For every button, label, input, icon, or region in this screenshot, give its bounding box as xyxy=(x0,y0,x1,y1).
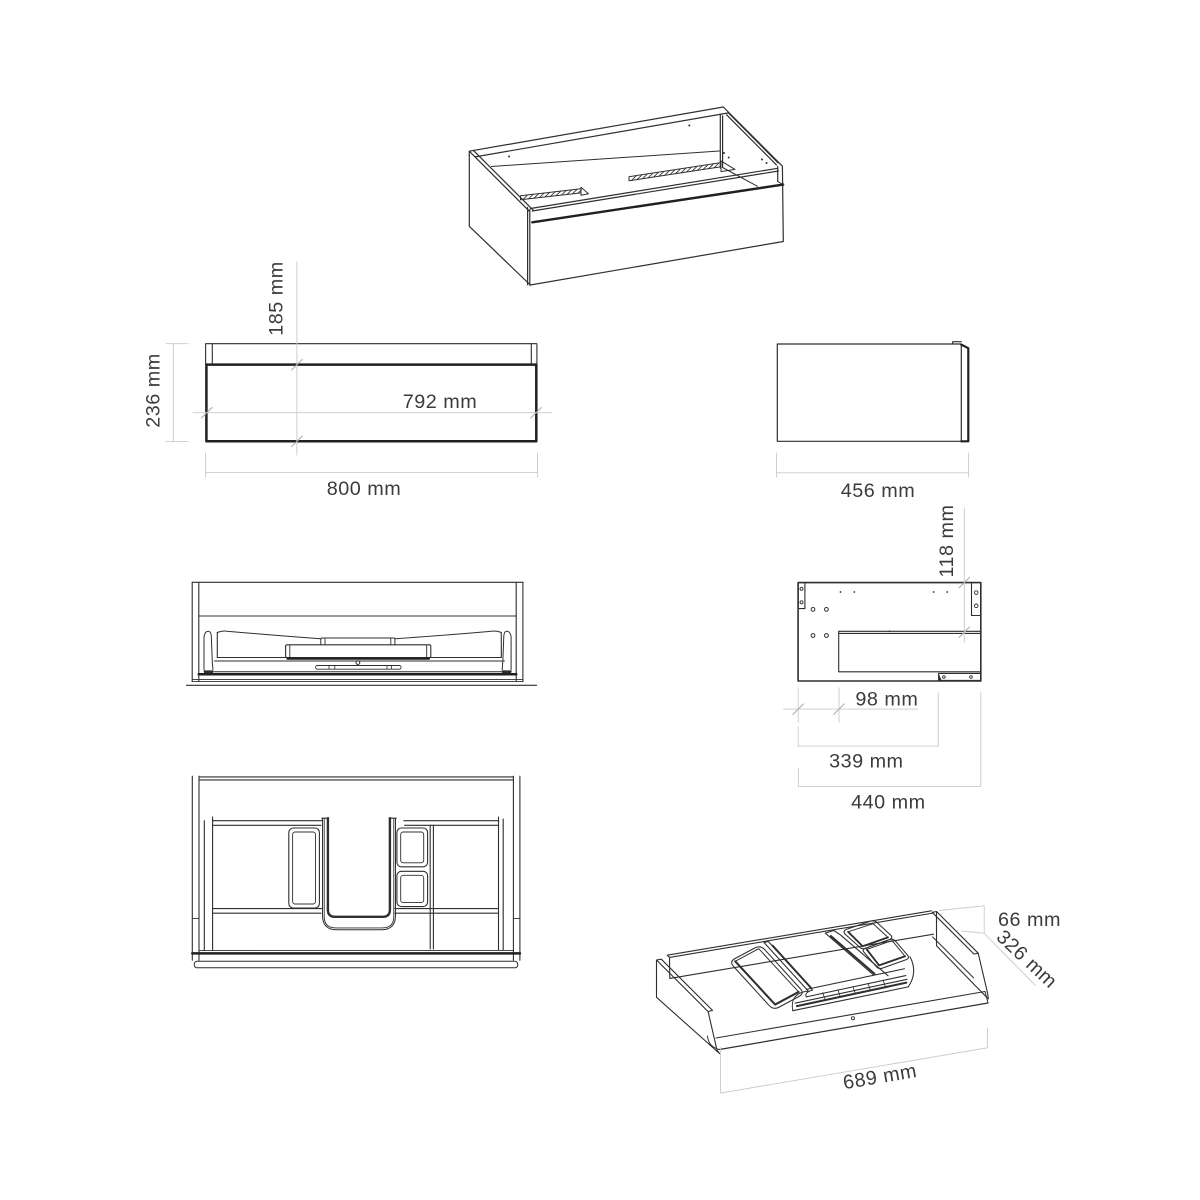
svg-text:98 mm: 98 mm xyxy=(855,689,918,711)
svg-text:118 mm: 118 mm xyxy=(936,505,958,578)
svg-text:440 mm: 440 mm xyxy=(851,791,925,813)
svg-text:326 mm: 326 mm xyxy=(992,926,1061,993)
svg-text:792 mm: 792 mm xyxy=(403,391,477,413)
svg-text:689 mm: 689 mm xyxy=(841,1060,918,1094)
svg-text:456 mm: 456 mm xyxy=(841,480,915,502)
svg-text:236 mm: 236 mm xyxy=(143,353,165,427)
svg-text:185 mm: 185 mm xyxy=(266,261,288,335)
svg-text:800 mm: 800 mm xyxy=(327,478,401,500)
svg-text:339 mm: 339 mm xyxy=(829,750,903,772)
